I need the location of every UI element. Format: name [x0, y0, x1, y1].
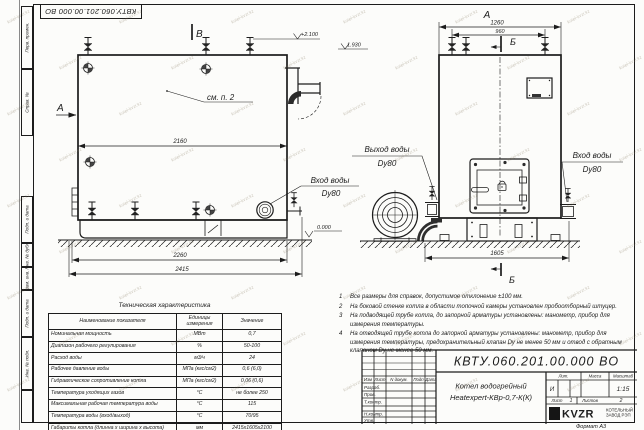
valve-icon — [246, 38, 254, 56]
note-text: На подводящей трубе котла, до запорной а… — [350, 312, 635, 329]
scale-header: Масштаб — [613, 374, 634, 379]
margin-label: Подп. и дата — [25, 205, 30, 233]
door-hinge — [520, 195, 527, 201]
note-number: 3 — [339, 312, 350, 329]
tech-cell: % — [177, 341, 223, 353]
lit-header: Лит. — [557, 374, 568, 379]
tb-row-label: Утв. — [364, 418, 374, 423]
tech-cell: МВт — [177, 330, 223, 342]
pipe-label: Dy80 — [583, 165, 602, 174]
tech-header-cell: Значение — [223, 314, 282, 330]
tech-cell: 50-100 — [223, 341, 282, 353]
blower-fan — [372, 190, 418, 241]
margin-box-podp-data-1: Подп. и дата — [21, 196, 33, 243]
target-mark-icon — [204, 204, 217, 217]
tb-col-header: Подп — [413, 377, 424, 382]
tech-cell: °С — [177, 400, 223, 412]
top-rotated-stamp: КВТУ.060.201.00.000 ВО — [40, 4, 142, 19]
tech-cell: м3/ч — [177, 353, 223, 365]
tech-row: Номинальная мощностьМВт0,7 — [49, 330, 282, 342]
product-name: Котел водогрейный — [455, 382, 527, 391]
tech-characteristics: Техническая характеристика Наименование … — [48, 300, 281, 430]
tech-cell: 0,6 (6,0) — [223, 365, 282, 377]
sheets-value: 2 — [619, 398, 623, 404]
tech-cell: °С — [177, 411, 223, 423]
tech-table-title: Техническая характеристика — [48, 300, 281, 313]
lit-value: И — [550, 387, 555, 393]
format-note: Формат А3 — [545, 424, 637, 430]
dim-text: 2260 — [172, 253, 187, 259]
sheet-value: 1 — [570, 398, 573, 404]
tech-cell: 24 — [223, 353, 282, 365]
format-label: Формат — [576, 424, 598, 430]
valve-icon — [88, 202, 96, 220]
tech-table: Наименование показателя Единицы измерени… — [48, 313, 282, 430]
inlet-pipe — [560, 189, 576, 219]
door-handle — [472, 188, 489, 193]
margin-box-empty — [21, 390, 33, 423]
section-label: А — [56, 103, 64, 114]
note-number: 4 — [339, 330, 350, 356]
side-bracket — [72, 188, 78, 216]
dim-text: 960 — [495, 29, 505, 35]
pipe-label: Вход воды — [311, 176, 350, 185]
door-hinge — [520, 177, 527, 183]
logo-text: KVZR — [562, 409, 594, 421]
tb-col-header: Изм — [364, 377, 372, 382]
margin-box-podp-data-2: Подп. и дата — [21, 290, 33, 337]
dim-text: 2415 — [174, 267, 189, 273]
tb-col-header: N докум. — [390, 377, 407, 382]
tech-cell: МПа (кгс/см2) — [177, 376, 223, 388]
tech-cell: 0,06 (0,6) — [223, 376, 282, 388]
side-view-annotations: B А +2.100 1.930 0.000 см. п. 2 Вход вод… — [56, 24, 368, 237]
margin-box-perv-primen: Перв. примен. — [21, 6, 33, 69]
furnace-door — [470, 159, 529, 213]
target-mark-icon — [82, 62, 95, 75]
tech-cell: Габариты котла (длинна х ширина х высота… — [49, 423, 177, 430]
tech-row: Максимальная рабочая температура воды°С1… — [49, 400, 282, 412]
tech-cell: 2415х1605х2100 — [223, 423, 282, 430]
pipe-label: Вход воды — [573, 151, 612, 160]
outlet-pipe — [425, 187, 439, 217]
tech-cell: 0,7 — [223, 330, 282, 342]
margin-label: Справ. № — [25, 92, 30, 112]
tech-row: Температура уходящих газов°Сне более 250 — [49, 388, 282, 400]
padlock-icon — [500, 181, 506, 184]
fan-elbow-duct — [421, 218, 443, 241]
base-frame — [80, 220, 287, 238]
sheet-label: Лист — [550, 398, 562, 403]
elevation-label: 1.930 — [347, 43, 362, 49]
valve-icon — [192, 202, 200, 220]
tech-cell: 115 — [223, 400, 282, 412]
tb-row-label: Разраб. — [364, 385, 380, 390]
sheets-label: Листов — [581, 398, 598, 403]
notes-block: 1Все размеры для справок, допустимое отк… — [339, 293, 635, 357]
note-number: 1 — [339, 293, 350, 302]
margin-box-sprav: Справ. № — [21, 69, 33, 136]
valve-icon — [131, 202, 139, 220]
margin-box-vzam-inv: Взам. инв. № — [21, 267, 33, 290]
tech-cell: Температура уходящих газов — [49, 388, 177, 400]
tech-header-cell: Наименование показателя — [49, 314, 177, 330]
tb-row-label: Н.контр. — [364, 412, 383, 417]
boiler-front-view — [360, 38, 580, 249]
tech-row: Гидравлическое сопротивление котлаМПа (к… — [49, 376, 282, 388]
inlet-flange — [257, 202, 273, 218]
top-stamp-text: КВТУ.060.201.00.000 ВО — [45, 7, 136, 16]
tb-col-header: Лист — [373, 377, 385, 382]
tech-header-cell: Единицы измерения — [177, 314, 223, 330]
tb-row-label: Т.контр. — [364, 400, 382, 405]
valve-icon — [462, 38, 470, 56]
margin-label: Инв. № подл. — [25, 350, 30, 378]
title-block: КВТУ.060.201.00.000 ВО Котел водогрейный… — [362, 350, 637, 424]
pipe-label: Dy80 — [378, 159, 397, 168]
tech-cell: не более 250 — [223, 388, 282, 400]
tech-row: Расход водым3/ч24 — [49, 353, 282, 365]
margin-label: Перв. примен. — [25, 23, 30, 53]
section-label: Б — [509, 275, 515, 285]
see-note-label: см. п. 2 — [207, 93, 235, 102]
product-name: Heatexpert-КВр-0,7-К(К) — [450, 393, 533, 402]
tech-cell: Максимальная рабочая температура воды — [49, 400, 177, 412]
company-logo: KVZR КОТЕЛЬНЫЙ ЗАВОД РЭП — [549, 407, 633, 421]
tech-header-row: Наименование показателя Единицы измерени… — [49, 314, 282, 330]
tech-row: Габариты котла (длинна х ширина х высота… — [49, 423, 282, 430]
tech-cell: °С — [177, 388, 223, 400]
tech-row: Температура воды (вход/выход)°С70/95 — [49, 411, 282, 423]
note-number: 2 — [339, 303, 350, 312]
logo-subtext: ЗАВОД РЭП — [606, 413, 631, 418]
dim-text: 1605 — [490, 251, 504, 257]
tech-cell: Рабочее давление воды — [49, 365, 177, 377]
valve-icon — [291, 193, 297, 207]
tech-cell: мм — [177, 423, 223, 430]
elevation-label: +2.100 — [301, 32, 319, 38]
scale-value: 1:15 — [617, 386, 630, 393]
target-mark-icon — [84, 156, 97, 169]
target-mark-icon — [200, 63, 213, 76]
note-item: 4На отводящей трубе котла до запорной ар… — [339, 330, 635, 356]
tb-col-header: Дата — [424, 377, 437, 382]
margin-label: Подп. и дата — [25, 299, 30, 327]
tb-row-label: Пров. — [364, 392, 376, 397]
dim-text: 2160 — [172, 139, 187, 145]
margin-box-inv-podl: Инв. № подл. — [21, 337, 33, 390]
section-label: B — [196, 29, 203, 40]
valve-icon — [429, 187, 435, 201]
tech-table-body: Номинальная мощностьМВт0,7Диапазон рабоч… — [49, 330, 282, 430]
view-label: А — [483, 10, 491, 21]
tech-cell: МПа (кгс/см2) — [177, 365, 223, 377]
ground-hatch — [58, 241, 312, 248]
dim-text: 1260 — [490, 21, 504, 27]
tech-cell: Номинальная мощность — [49, 330, 177, 342]
tech-row: Рабочее давление водыМПа (кгс/см2)0,6 (6… — [49, 365, 282, 377]
elevation-label: 0.000 — [317, 225, 332, 231]
tech-cell: 70/95 — [223, 411, 282, 423]
control-panel — [527, 78, 552, 98]
valve-icon — [202, 38, 210, 56]
boiler-side-view — [58, 38, 321, 248]
note-text: На отводящей трубе котла до запорной арм… — [350, 330, 635, 356]
chimney-outlet — [285, 68, 321, 119]
margin-label: Инв. № дубл. — [25, 243, 30, 267]
note-text: Все размеры для справок, допустимое откл… — [350, 293, 635, 302]
section-label: Б — [510, 37, 516, 47]
format-value: А3 — [599, 424, 606, 430]
ground-hatch — [360, 242, 580, 249]
front-view-dimensions: 1260 960 1605 — [425, 21, 569, 263]
note-item: 2На боковой стенке котла в области топоч… — [339, 303, 635, 312]
notes-list: 1Все размеры для справок, допустимое отк… — [339, 293, 635, 356]
margin-label: Взам. инв. № — [25, 267, 30, 290]
valve-icon — [84, 38, 92, 56]
side-pipe — [287, 207, 302, 216]
note-item: 1Все размеры для справок, допустимое отк… — [339, 293, 635, 302]
pipe-label: Выход воды — [365, 145, 410, 154]
drawing-sheet: КВТУ.060.201.00.000 ВО Перв. примен. Спр… — [0, 0, 644, 430]
tech-row: Диапазон рабочего регулирования%50-100 — [49, 341, 282, 353]
tech-cell: Температура воды (вход/выход) — [49, 411, 177, 423]
tech-cell: Диапазон рабочего регулирования — [49, 341, 177, 353]
margin-box-inv-dubl: Инв. № дубл. — [21, 243, 33, 267]
note-text: На боковой стенке котла в области топочн… — [350, 303, 635, 312]
tech-cell: Расход воды — [49, 353, 177, 365]
mass-header: Масса — [589, 374, 602, 379]
pipe-label: Dy80 — [322, 189, 341, 198]
tech-cell: Гидравлическое сопротивление котла — [49, 376, 177, 388]
note-item: 3На подводящей трубе котла, до запорной … — [339, 312, 635, 329]
